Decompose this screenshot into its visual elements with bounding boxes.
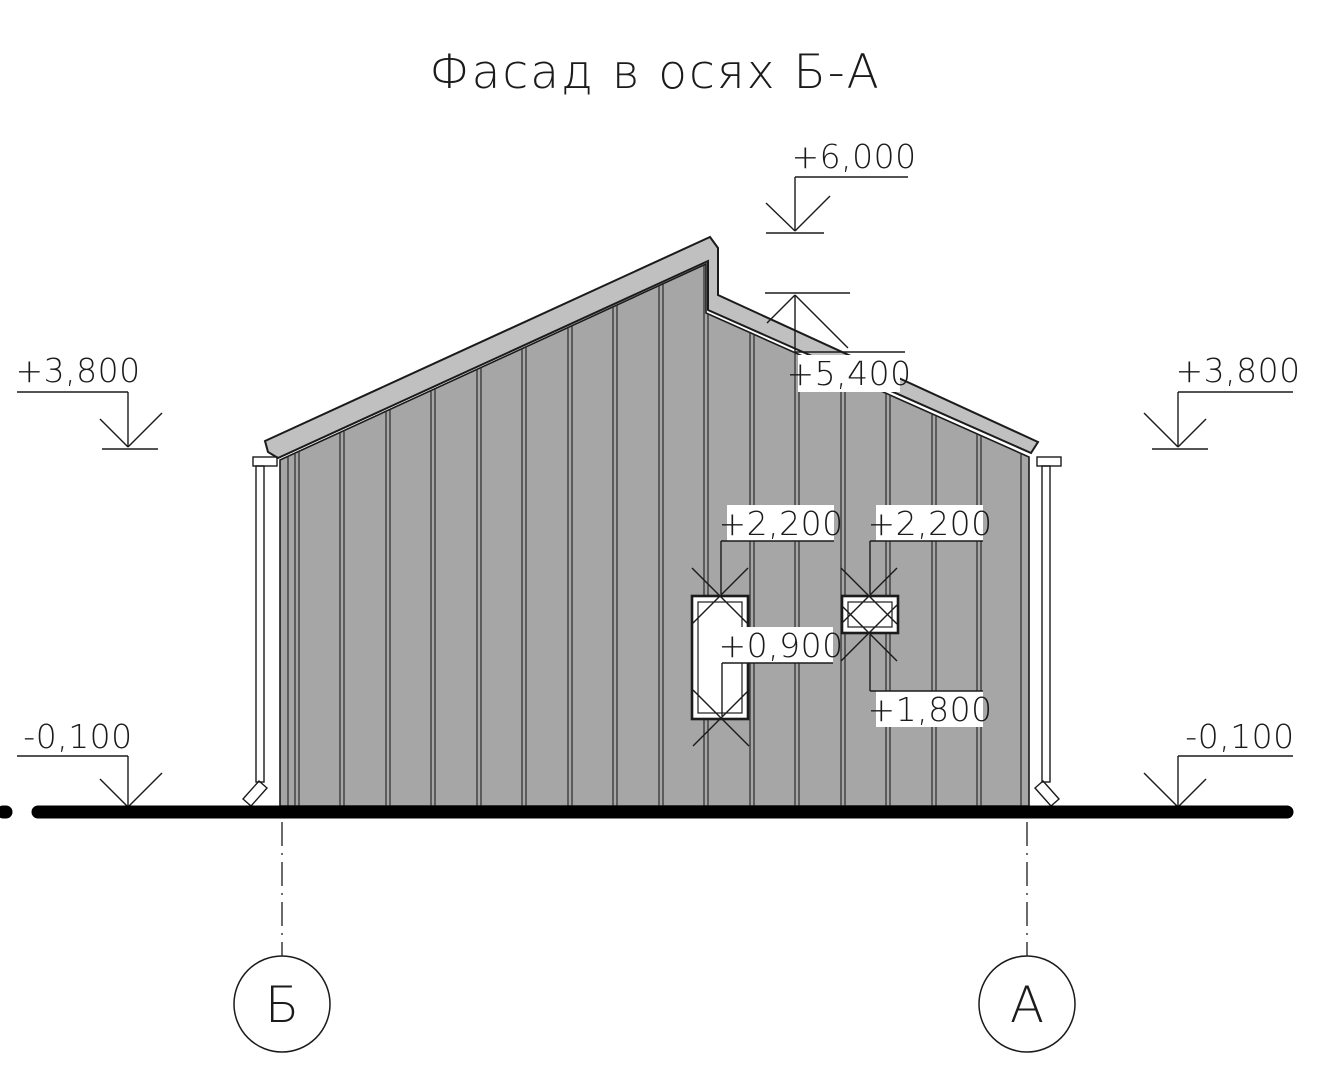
downspout-elbow: [243, 781, 267, 806]
drawing-title: Фасад в осях Б-А: [429, 45, 881, 100]
elevation-label: +3,800: [15, 351, 140, 390]
elevation-label: -0,100: [23, 717, 132, 756]
downspout-bracket: [253, 457, 277, 466]
elevation-label: +2,200: [718, 504, 843, 543]
downspout-elbow: [1035, 781, 1059, 806]
mark-ridge: +6,000: [766, 137, 917, 233]
axis-b: Б: [234, 822, 330, 1052]
axis-label: Б: [265, 976, 299, 1034]
elevation-label: +2,200: [867, 504, 992, 543]
downspout-bracket: [1037, 457, 1061, 466]
mark-ground-right: -0,100: [1144, 717, 1295, 807]
downspout-right: [1035, 457, 1061, 806]
elevation-label: +1,800: [867, 690, 992, 729]
axis-a: А: [979, 822, 1075, 1052]
elevation-label: +0,900: [718, 626, 843, 665]
mark-eave-right: +3,800: [1144, 351, 1301, 449]
elevation-label: +6,000: [791, 137, 916, 176]
downspout-left: [243, 457, 277, 806]
downspout-pipe: [256, 466, 264, 782]
mark-eave-left: +3,800: [15, 351, 162, 449]
downspout-pipe: [1042, 466, 1050, 782]
mark-ground-left: -0,100: [17, 717, 162, 807]
elevation-label: +3,800: [1175, 351, 1300, 390]
elevation-label: +5,400: [786, 354, 911, 393]
elevation-label: -0,100: [1185, 717, 1294, 756]
drawing-sheet: Фасад в осях Б-А: [0, 0, 1336, 1080]
axis-label: А: [1010, 976, 1044, 1034]
facade-elevation-drawing: Фасад в осях Б-А: [0, 0, 1336, 1080]
